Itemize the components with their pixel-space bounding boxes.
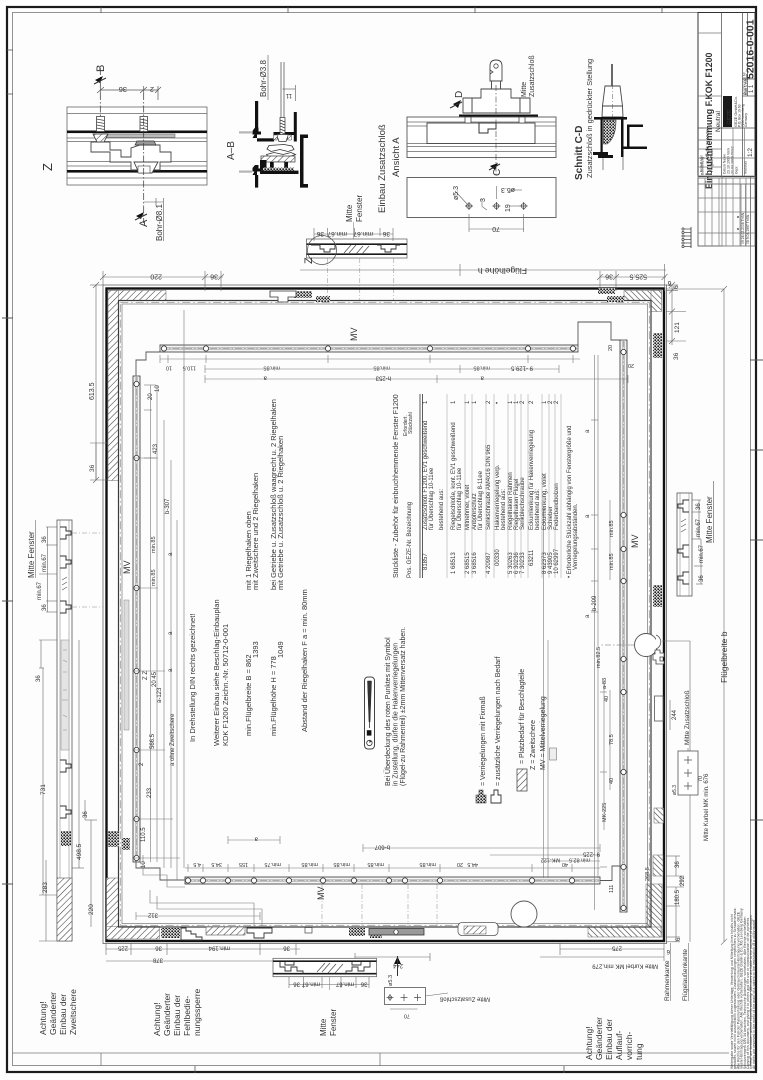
svg-text:36: 36 xyxy=(36,675,42,682)
svg-text:min.67: min.67 xyxy=(699,544,705,563)
svg-text:Bei Überdeckung des roten Punk: Bei Überdeckung des roten Punktes mit Sy… xyxy=(384,637,392,786)
svg-text:Mitte Kurbel MK min.279: Mitte Kurbel MK min.279 xyxy=(592,963,658,969)
svg-text:Mitte: Mitte xyxy=(345,204,354,222)
svg-text:min.75: min.75 xyxy=(264,861,281,867)
svg-text:10: 10 xyxy=(141,861,147,868)
svg-text:11: 11 xyxy=(285,92,292,98)
svg-text:111: 111 xyxy=(609,885,615,893)
svg-text:für Überschlag 10-11ee: für Überschlag 10-11ee xyxy=(456,467,463,530)
svg-text:09 24.02.2008 ThSN: 09 24.02.2008 ThSN xyxy=(741,212,745,244)
svg-text:All rights are reserved in the: All rights are reserved in the event of … xyxy=(752,920,756,1069)
svg-text:b-307: b-307 xyxy=(165,498,171,514)
svg-text:70: 70 xyxy=(404,1013,410,1019)
svg-text:Mitte Kurbel MK min. 676: Mitte Kurbel MK min. 676 xyxy=(704,773,710,841)
svg-text:20: 20 xyxy=(457,861,463,867)
svg-text:Bohr-Ø8.1: Bohr-Ø8.1 xyxy=(155,204,164,241)
svg-text:Schnitt C-D: Schnitt C-D xyxy=(574,126,585,180)
svg-text:Verriegelungsabständen.: Verriegelungsabständen. xyxy=(573,503,579,570)
svg-text:4 20987: 4 20987 xyxy=(486,552,492,574)
svg-text:Mitte Zusatzschloß: Mitte Zusatzschloß xyxy=(439,996,490,1002)
svg-text:Mitte: Mitte xyxy=(521,82,528,97)
svg-text:vorrich-: vorrich- xyxy=(624,1031,634,1060)
svg-text:78.5: 78.5 xyxy=(609,734,615,745)
svg-text:min.85: min.85 xyxy=(151,569,157,586)
svg-text:36: 36 xyxy=(283,945,290,951)
svg-text:Fehlbedie-: Fehlbedie- xyxy=(182,996,192,1036)
svg-text:36: 36 xyxy=(696,503,702,510)
svg-text:MV: MV xyxy=(316,887,326,901)
svg-text:mit Zweitschere und 2 Riegelha: mit Zweitschere und 2 Riegelhaken xyxy=(251,473,260,590)
svg-text:min.Flügelbreite B = 862: min.Flügelbreite B = 862 xyxy=(244,654,253,736)
svg-text:In Drehstellung DIN rechts gez: In Drehstellung DIN rechts gezeichnet! xyxy=(188,614,197,742)
svg-text:= Verriegelungen mit Fixmaß: = Verriegelungen mit Fixmaß xyxy=(480,696,487,786)
svg-text:Z = Zweitschere: Z = Zweitschere xyxy=(530,720,537,770)
svg-text:63211: 63211 xyxy=(529,549,535,566)
svg-text:220: 220 xyxy=(88,904,95,915)
svg-text:min.85: min.85 xyxy=(301,861,318,867)
svg-text:36: 36 xyxy=(382,230,390,237)
svg-text:für Überschlag 10-11ee: für Überschlag 10-11ee xyxy=(428,467,435,530)
svg-text:min.85: min.85 xyxy=(473,365,490,371)
svg-text:378: 378 xyxy=(152,957,163,963)
svg-text:110.5: 110.5 xyxy=(141,827,147,842)
svg-text:= zusätzliche Verriegelungen: = zusätzliche Verriegelungen nach Bedarf xyxy=(495,657,502,786)
svg-text:233: 233 xyxy=(147,787,153,798)
svg-text:70: 70 xyxy=(492,225,500,232)
svg-text:Z Z: Z Z xyxy=(143,671,149,680)
svg-text:Ansicht A: Ansicht A xyxy=(391,137,402,177)
svg-text:min.85: min.85 xyxy=(373,365,390,371)
svg-text:(Flügel-zu Rahmenteil) ±2mm Mi: (Flügel-zu Rahmenteil) ±2mm Mittenversat… xyxy=(400,627,407,786)
svg-text:min.85: min.85 xyxy=(609,553,615,570)
svg-text:min.85: min.85 xyxy=(333,861,350,867)
svg-text:9 -225: 9 -225 xyxy=(582,851,600,857)
svg-text:81857: 81857 xyxy=(423,553,429,570)
svg-text:Mitte: Mitte xyxy=(319,1018,328,1036)
svg-text:A–B: A–B xyxy=(226,141,237,160)
svg-text:Achtung!: Achtung! xyxy=(584,1026,594,1060)
svg-text:MV: MV xyxy=(630,535,640,549)
svg-text:36: 36 xyxy=(155,945,162,951)
svg-text:bestehend aus:: bestehend aus: xyxy=(439,489,445,530)
svg-text:Weiterer Einbau siehe Beschlag: Weiterer Einbau siehe Beschlag-Einbaupla… xyxy=(212,599,221,746)
svg-text:20: 20 xyxy=(608,345,614,351)
svg-text:525.5: 525.5 xyxy=(629,273,647,280)
svg-text:220: 220 xyxy=(150,273,162,280)
svg-text:Rahmenkante: Rahmenkante xyxy=(664,960,671,1001)
svg-text:Mitte Fenster: Mitte Fenster xyxy=(27,531,36,578)
svg-text:min.67: min.67 xyxy=(42,553,48,572)
svg-text:Senkschraube AM4x16 DIN 965: Senkschraube AM4x16 DIN 965 xyxy=(486,444,492,530)
svg-text:121: 121 xyxy=(674,322,681,333)
svg-text:ø5.3: ø5.3 xyxy=(388,975,394,986)
svg-text:a-123: a-123 xyxy=(157,687,163,703)
svg-text:Blatt 1 von: Blatt 1 von xyxy=(744,78,748,95)
svg-text:9 -129.5: 9 -129.5 xyxy=(510,365,533,371)
svg-text:bestehend aus:: bestehend aus: xyxy=(535,489,541,530)
svg-text:Einbau der: Einbau der xyxy=(58,994,68,1035)
svg-text:min.67: min.67 xyxy=(353,230,373,237)
svg-text:b-607: b-607 xyxy=(374,844,390,850)
svg-text:min.Flügelhöhe H = 778: min.Flügelhöhe H = 778 xyxy=(269,656,278,736)
svg-text:Zusatzschloß: Zusatzschloß xyxy=(529,55,536,97)
svg-text:MV: MV xyxy=(122,561,132,575)
svg-text:min.85: min.85 xyxy=(263,365,280,371)
svg-text:Maßstab: Maßstab xyxy=(744,161,748,174)
svg-text:20: 20 xyxy=(628,362,634,368)
svg-text:566.5: 566.5 xyxy=(150,733,156,749)
svg-text:10: 10 xyxy=(166,365,172,371)
svg-text:Fenster: Fenster xyxy=(329,1009,338,1036)
svg-text:36: 36 xyxy=(89,464,96,472)
svg-text:min.85: min.85 xyxy=(609,520,615,537)
svg-text:292: 292 xyxy=(680,875,686,886)
svg-text:mit Getriebe u. Zusatzschloß u: mit Getriebe u. Zusatzschloß u. 2 Riegel… xyxy=(276,436,285,590)
svg-text:Zusatzschloß in gedrückter Ste: Zusatzschloß in gedrückter Stellung xyxy=(585,59,594,178)
svg-text:= Platzbedarf für Beschlagt: = Platzbedarf für Beschlagteile xyxy=(519,669,526,764)
svg-text:ø5.3: ø5.3 xyxy=(453,186,460,200)
svg-text:36: 36 xyxy=(83,811,89,818)
svg-text:40: 40 xyxy=(604,696,610,702)
svg-text:min 82.5: min 82.5 xyxy=(569,857,590,863)
svg-text:44.5: 44.5 xyxy=(467,861,478,867)
svg-text:Mitte Zusatzschloß: Mitte Zusatzschloß xyxy=(684,690,691,745)
svg-text:6: 6 xyxy=(673,285,680,289)
svg-text:Germany: Germany xyxy=(744,113,748,127)
svg-text:613.5: 613.5 xyxy=(89,382,96,400)
svg-text:1049: 1049 xyxy=(276,641,285,658)
svg-text:4.5: 4.5 xyxy=(193,861,201,867)
svg-text:244: 244 xyxy=(672,709,678,720)
svg-text:Gepr.: Gepr. xyxy=(735,166,739,174)
svg-text:min.82.5: min.82.5 xyxy=(596,647,602,668)
svg-text:275: 275 xyxy=(611,945,622,951)
svg-text:Geänderter: Geänderter xyxy=(48,992,58,1035)
svg-text:min.67: min.67 xyxy=(335,981,354,987)
svg-text:Neutral: Neutral xyxy=(715,110,722,132)
svg-text:36: 36 xyxy=(675,861,681,868)
svg-text:2 68515: 2 68515 xyxy=(465,552,471,574)
svg-text:b-209: b-209 xyxy=(592,595,598,611)
svg-text:für Überschlag 8-11ee: für Überschlag 8-11ee xyxy=(477,470,484,530)
svg-text:Flügelhöhe h: Flügelhöhe h xyxy=(478,266,527,276)
svg-text:731: 731 xyxy=(40,784,47,795)
svg-text:Geänderter: Geänderter xyxy=(594,1017,604,1060)
svg-text:Achtung!: Achtung! xyxy=(152,1002,162,1036)
svg-text:3: 3 xyxy=(480,198,487,202)
svg-text:Einbau der: Einbau der xyxy=(604,1019,614,1060)
svg-text:MK-225: MK-225 xyxy=(602,803,608,822)
svg-text:min.194: min.194 xyxy=(208,945,230,951)
svg-text:40: 40 xyxy=(562,861,568,867)
svg-text:Z: Z xyxy=(303,257,315,264)
svg-text:40: 40 xyxy=(609,778,615,784)
svg-text:110.5: 110.5 xyxy=(183,365,196,371)
svg-text:36: 36 xyxy=(42,604,48,611)
svg-text:Fenster: Fenster xyxy=(355,195,364,222)
svg-text:20: 20 xyxy=(148,393,154,400)
svg-text:C: C xyxy=(492,169,503,176)
svg-text:36: 36 xyxy=(293,981,300,987)
svg-text:a ohne Zweitschere: a ohne Zweitschere xyxy=(170,713,176,766)
svg-text:min.67: min.67 xyxy=(327,230,347,237)
svg-text:36: 36 xyxy=(699,575,705,582)
svg-text:225: 225 xyxy=(117,945,128,951)
svg-text:1 68513: 1 68513 xyxy=(451,552,457,574)
svg-text:Einbau Zusatzschloß: Einbau Zusatzschloß xyxy=(377,124,388,213)
svg-text:36: 36 xyxy=(210,273,218,280)
svg-text:Erstellt Von: Erstellt Von xyxy=(700,155,704,172)
svg-text:312: 312 xyxy=(147,912,158,918)
svg-text:KDK F1200 Zeichn.-Nr. 50712-: KDK F1200 Zeichn.-Nr. 50712-0-001 xyxy=(221,624,230,746)
svg-text:19: 19 xyxy=(505,204,512,212)
svg-text:00330: 00330 xyxy=(495,549,501,566)
svg-text:nungssperre: nungssperre xyxy=(192,988,202,1036)
svg-text:Bohr-Ø3.8: Bohr-Ø3.8 xyxy=(259,60,268,97)
svg-text:MV: MV xyxy=(349,328,359,342)
svg-text:MV = Mittelverriegelung: MV = Mittelverriegelung xyxy=(540,696,547,770)
svg-text:min.67: min.67 xyxy=(301,981,320,987)
svg-text:498.5: 498.5 xyxy=(76,843,83,860)
svg-text:268.5: 268.5 xyxy=(645,867,651,881)
svg-text:D: D xyxy=(454,91,465,98)
svg-text:a-83: a-83 xyxy=(602,678,608,689)
svg-text:Geänderter: Geänderter xyxy=(162,993,172,1036)
svg-text:Achtung!: Achtung! xyxy=(38,1001,48,1035)
svg-text:36: 36 xyxy=(673,352,680,360)
svg-text:Abstand der Riegelhaken F a: Abstand der Riegelhaken F a = min. 80mm xyxy=(300,589,309,732)
svg-text:3 68516: 3 68516 xyxy=(472,552,478,574)
svg-text:10: 10 xyxy=(155,385,161,392)
svg-text:155: 155 xyxy=(239,861,248,867)
svg-text:ø5.3: ø5.3 xyxy=(672,785,678,795)
svg-text:180.5: 180.5 xyxy=(675,889,681,905)
svg-text:20 45: 20 45 xyxy=(152,671,158,687)
svg-text:ø5.3: ø5.3 xyxy=(501,186,515,193)
svg-text:Flügelaußenkante: Flügelaußenkante xyxy=(682,949,689,1001)
svg-text:in Zustellung, dürfen die Hake: in Zustellung, dürfen die Hakenverriegel… xyxy=(393,643,400,786)
svg-text:70: 70 xyxy=(698,776,704,782)
svg-text:08 9.04.1997 ThSN: 08 9.04.1997 ThSN xyxy=(746,214,750,244)
svg-text:283: 283 xyxy=(42,882,49,893)
svg-text:Auflauf-: Auflauf- xyxy=(614,1031,624,1060)
svg-text:tung: tung xyxy=(634,1043,644,1060)
svg-text:A: A xyxy=(138,219,150,227)
svg-text:36: 36 xyxy=(605,273,613,280)
svg-text:GEZE: GEZE xyxy=(727,109,733,124)
svg-text:bestehend aus:: bestehend aus: xyxy=(501,489,507,530)
svg-text:min.85: min.85 xyxy=(419,861,436,867)
svg-text:34.5: 34.5 xyxy=(211,861,222,867)
svg-text:Zweitschere: Zweitschere xyxy=(68,989,78,1035)
svg-text:423: 423 xyxy=(153,443,159,454)
svg-text:Stückzahl: Stückzahl xyxy=(408,412,414,434)
svg-text:Freigabe Raum: Freigabe Raum xyxy=(710,148,714,172)
svg-text:52016-0-001: 52016-0-001 xyxy=(745,19,757,79)
svg-text:36: 36 xyxy=(316,230,324,237)
svg-text:Z: Z xyxy=(40,163,55,171)
svg-text:1393: 1393 xyxy=(251,641,260,658)
svg-text:min.67: min.67 xyxy=(696,518,702,537)
svg-text:Stückliste - Zubehör für e: Stückliste - Zubehör für einbruchhemmend… xyxy=(393,394,400,578)
svg-text:min.85: min.85 xyxy=(151,536,157,553)
svg-text:Pos. GEZE-Nr. Bezeichnung: Pos. GEZE-Nr. Bezeichnung xyxy=(407,502,413,578)
svg-text:1 1: 1 1 xyxy=(749,84,755,93)
svg-text:2: 2 xyxy=(150,85,154,94)
svg-text:1:2: 1:2 xyxy=(747,148,754,157)
svg-text:Mitnehmer, violet: Mitnehmer, violet xyxy=(465,484,471,530)
svg-text:min.67: min.67 xyxy=(37,581,43,600)
svg-text:gLfW.vork 23.10.90: gLfW.vork 23.10.90 xyxy=(705,129,710,164)
svg-text:h-253: h-253 xyxy=(375,375,391,381)
svg-text:Einbau der: Einbau der xyxy=(172,995,182,1036)
svg-text:36: 36 xyxy=(119,85,127,94)
svg-text:Mitte Fenster: Mitte Fenster xyxy=(705,496,714,543)
svg-text:36: 36 xyxy=(360,981,367,987)
svg-text:36: 36 xyxy=(42,536,48,543)
svg-text:min.85: min.85 xyxy=(367,861,384,867)
svg-text:B: B xyxy=(95,65,107,72)
svg-text:•: • xyxy=(495,402,501,404)
svg-text:Flügelbreite b: Flügelbreite b xyxy=(719,631,729,683)
